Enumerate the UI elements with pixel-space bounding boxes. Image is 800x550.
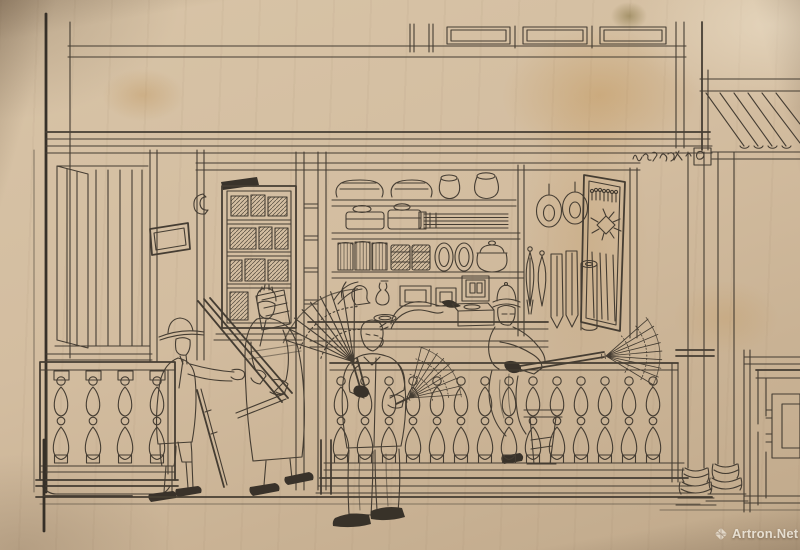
watermark: Artron.Net: [714, 526, 798, 541]
lattice-panel: [744, 350, 800, 512]
right-display: [518, 165, 637, 338]
shop-sign-inscription-icon: [633, 148, 711, 165]
columns: [676, 152, 748, 505]
watermark-text: Artron.Net: [732, 526, 798, 541]
shop-plaque: [150, 223, 190, 255]
scanned-drawing: Artron.Net: [0, 0, 800, 550]
ink-drawing: [0, 0, 800, 550]
shelves: [332, 173, 524, 306]
artron-logo-icon: [714, 527, 728, 541]
tiled-awning: [700, 22, 800, 159]
signboard-beam: [46, 132, 712, 165]
